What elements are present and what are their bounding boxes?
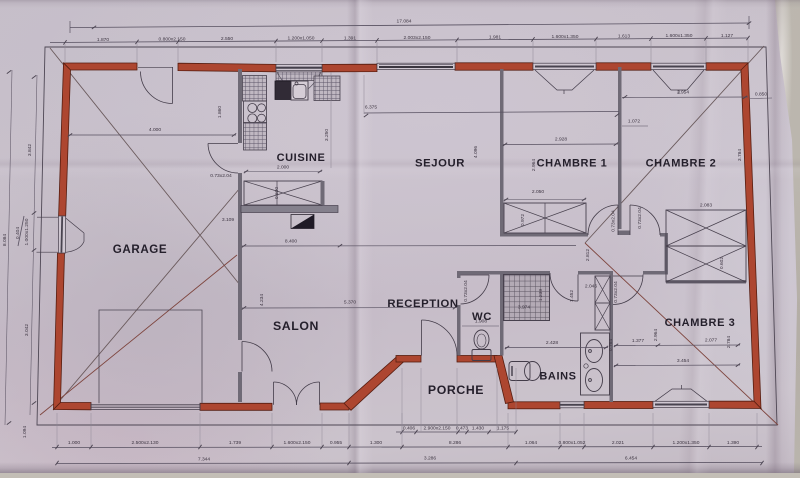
svg-text:1.377: 1.377 [632,338,645,344]
svg-text:4.000: 4.000 [149,127,162,133]
svg-text:2.928: 2.928 [555,137,568,143]
svg-text:2.500x2.130: 2.500x2.130 [132,440,159,446]
svg-text:2.000: 2.000 [277,165,290,171]
svg-text:1.981: 1.981 [489,34,502,40]
svg-text:1.300: 1.300 [370,440,383,446]
svg-text:0.73x2.04: 0.73x2.04 [637,207,643,229]
svg-text:CHAMBRE 1: CHAMBRE 1 [537,158,608,170]
svg-text:2.964: 2.964 [653,329,659,342]
svg-text:PORCHE: PORCHE [428,383,484,397]
svg-text:8.286: 8.286 [449,440,462,446]
svg-text:3.842: 3.842 [27,144,33,157]
svg-text:3.109: 3.109 [222,217,235,223]
svg-text:0.404: 0.404 [15,227,21,240]
svg-text:0.73x2.04: 0.73x2.04 [611,210,617,232]
svg-text:0.972: 0.972 [520,214,526,227]
svg-text:3.454: 3.454 [677,358,690,364]
svg-text:2.900x2.150: 2.900x2.150 [424,426,451,432]
svg-text:1.391: 1.391 [344,35,357,41]
svg-text:0.800x2.150: 0.800x2.150 [159,36,186,42]
svg-text:2.050: 2.050 [532,189,545,195]
svg-text:1.094: 1.094 [22,426,28,439]
svg-text:3.974: 3.974 [518,305,531,311]
svg-text:7.344: 7.344 [198,457,211,463]
svg-text:RECEPTION: RECEPTION [387,298,458,310]
svg-text:0.73x2.04: 0.73x2.04 [463,280,469,302]
svg-text:1.000: 1.000 [68,440,81,446]
svg-text:3.286: 3.286 [424,456,437,462]
svg-text:1.600x1.350: 1.600x1.350 [552,34,579,40]
svg-text:6.454: 6.454 [625,456,638,462]
svg-text:CHAMBRE 3: CHAMBRE 3 [665,317,736,329]
svg-text:6.375: 6.375 [365,105,378,111]
svg-text:WC: WC [472,311,492,323]
svg-text:2.428: 2.428 [546,340,559,346]
svg-text:2.784: 2.784 [726,336,732,349]
svg-text:0.473: 0.473 [456,426,469,432]
svg-text:8.400: 8.400 [285,239,298,245]
svg-text:1.860: 1.860 [217,106,223,119]
svg-text:0.73x2.04: 0.73x2.04 [613,281,619,303]
svg-text:2.083: 2.083 [700,203,713,209]
svg-text:1.390: 1.390 [727,440,740,446]
svg-text:1.127: 1.127 [721,33,734,39]
svg-text:2.003x2.150: 2.003x2.150 [404,35,431,41]
svg-text:0.600: 0.600 [274,187,280,200]
svg-text:0.602: 0.602 [719,257,725,270]
svg-text:0.73x2.04: 0.73x2.04 [210,173,232,179]
svg-text:1.600x1.350: 1.600x1.350 [666,33,693,39]
svg-text:1.175: 1.175 [497,426,510,432]
svg-text:3.250: 3.250 [324,129,330,142]
svg-text:1.870: 1.870 [97,37,110,43]
svg-text:3.042: 3.042 [24,324,30,337]
svg-text:17.084: 17.084 [397,19,412,25]
svg-text:1.430: 1.430 [472,426,485,432]
svg-text:5.370: 5.370 [344,300,357,306]
svg-text:1.600x2.150: 1.600x2.150 [284,440,311,446]
svg-text:4.234: 4.234 [259,294,265,307]
svg-text:CHAMBRE 2: CHAMBRE 2 [646,158,717,170]
svg-text:2.046: 2.046 [585,284,598,290]
svg-text:1.000x1.250: 1.000x1.250 [24,218,30,245]
svg-text:GARAGE: GARAGE [113,243,168,256]
svg-text:2.021: 2.021 [612,440,625,446]
svg-text:2.077: 2.077 [705,338,718,344]
svg-text:BAINS: BAINS [539,371,576,383]
svg-text:8.084: 8.084 [2,234,8,247]
svg-text:1.200x1.050: 1.200x1.050 [288,36,315,42]
svg-text:1.452: 1.452 [569,290,575,303]
svg-text:1.072: 1.072 [628,119,641,125]
svg-text:SEJOUR: SEJOUR [415,158,465,170]
svg-text:CUISINE: CUISINE [277,152,326,164]
svg-text:0.800x1.052: 0.800x1.052 [559,440,586,446]
svg-text:1.739: 1.739 [229,440,242,446]
svg-text:2.550: 2.550 [221,36,234,42]
svg-text:4.096: 4.096 [473,146,479,159]
svg-text:SALON: SALON [273,319,319,333]
svg-text:0.955: 0.955 [330,440,343,446]
svg-text:1.200x1.350: 1.200x1.350 [673,440,700,446]
svg-text:1.064: 1.064 [525,440,538,446]
svg-text:1.613: 1.613 [618,34,631,40]
svg-text:3.784: 3.784 [737,149,743,162]
svg-text:1.239: 1.239 [538,289,544,302]
svg-text:0.850: 0.850 [755,92,768,98]
svg-text:2.812: 2.812 [585,249,591,262]
svg-text:2.954: 2.954 [677,90,690,96]
svg-text:0.764: 0.764 [608,339,614,352]
svg-text:0.406: 0.406 [403,426,416,432]
